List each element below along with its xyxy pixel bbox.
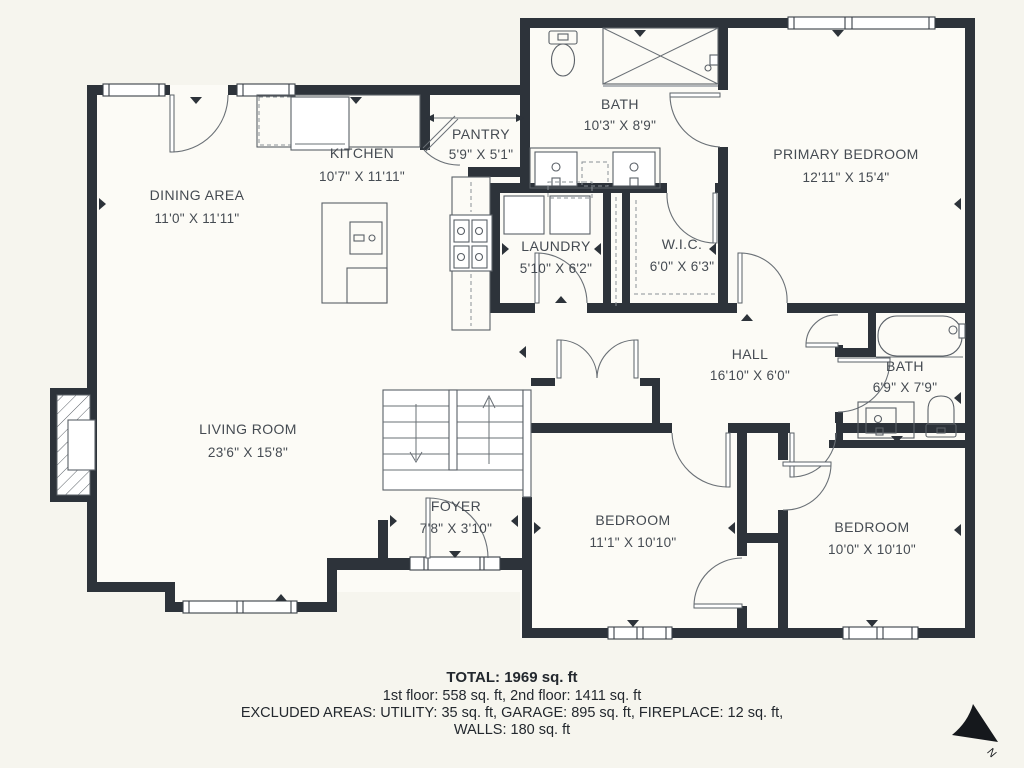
room-label-pantry: PANTRY bbox=[452, 126, 510, 142]
washer-icon bbox=[504, 196, 544, 234]
room-label-living: LIVING ROOM bbox=[199, 421, 297, 437]
room-dims-primary-bedroom: 12'11" X 15'4" bbox=[803, 170, 890, 185]
dryer-icon bbox=[550, 196, 590, 234]
room-label-bedroom-right: BEDROOM bbox=[834, 519, 909, 535]
front-door-frame bbox=[410, 557, 500, 570]
north-label: N bbox=[984, 746, 998, 760]
floor-plan-svg: DINING AREA 11'0" X 11'11" KITCHEN 10'7"… bbox=[0, 0, 1024, 768]
room-label-bath-right: BATH bbox=[886, 358, 924, 374]
floor-plan-page: DINING AREA 11'0" X 11'11" KITCHEN 10'7"… bbox=[0, 0, 1024, 768]
room-dims-pantry: 5'9" X 5'1" bbox=[449, 147, 514, 162]
room-label-primary-bedroom: PRIMARY BEDROOM bbox=[773, 146, 919, 162]
room-dims-bath-top: 10'3" X 8'9" bbox=[584, 118, 656, 133]
room-dims-bedroom-left: 11'1" X 10'10" bbox=[590, 535, 677, 550]
room-dims-kitchen: 10'7" X 11'11" bbox=[319, 169, 405, 184]
walls-area-text: WALLS: 180 sq. ft bbox=[454, 722, 570, 738]
room-label-kitchen: KITCHEN bbox=[330, 145, 394, 161]
floors-area-text: 1st floor: 558 sq. ft, 2nd floor: 1411 s… bbox=[383, 688, 641, 704]
window bbox=[237, 84, 295, 96]
room-dims-laundry: 5'10" X 6'2" bbox=[520, 261, 592, 276]
window bbox=[788, 17, 935, 29]
room-dims-dining: 11'0" X 11'11" bbox=[155, 211, 240, 226]
window bbox=[843, 627, 918, 639]
room-dims-wic: 6'0" X 6'3" bbox=[650, 259, 715, 274]
room-label-laundry: LAUNDRY bbox=[521, 238, 591, 254]
room-label-foyer: FOYER bbox=[431, 498, 481, 514]
room-dims-foyer: 7'8" X 3'10" bbox=[420, 521, 492, 536]
room-label-hall: HALL bbox=[732, 346, 769, 362]
room-label-bedroom-left: BEDROOM bbox=[595, 512, 670, 528]
room-dims-living: 23'6" X 15'8" bbox=[208, 445, 288, 460]
room-label-dining: DINING AREA bbox=[150, 187, 245, 203]
area-summary: TOTAL: 1969 sq. ft 1st floor: 558 sq. ft… bbox=[241, 669, 783, 738]
room-label-wic: W.I.C. bbox=[662, 236, 703, 252]
room-dims-bedroom-right: 10'0" X 10'10" bbox=[828, 542, 916, 557]
room-dims-bath-right: 6'9" X 7'9" bbox=[873, 380, 938, 395]
north-arrow-icon: N bbox=[952, 704, 998, 760]
window bbox=[608, 627, 672, 639]
window bbox=[103, 84, 165, 96]
total-area-text: TOTAL: 1969 sq. ft bbox=[446, 669, 577, 686]
staircase bbox=[383, 390, 531, 497]
room-dims-hall: 16'10" X 6'0" bbox=[710, 368, 790, 383]
excluded-areas-text: EXCLUDED AREAS: UTILITY: 35 sq. ft, GARA… bbox=[241, 705, 783, 721]
room-label-bath-top: BATH bbox=[601, 96, 639, 112]
fireplace-icon bbox=[57, 395, 95, 495]
window bbox=[183, 601, 297, 613]
